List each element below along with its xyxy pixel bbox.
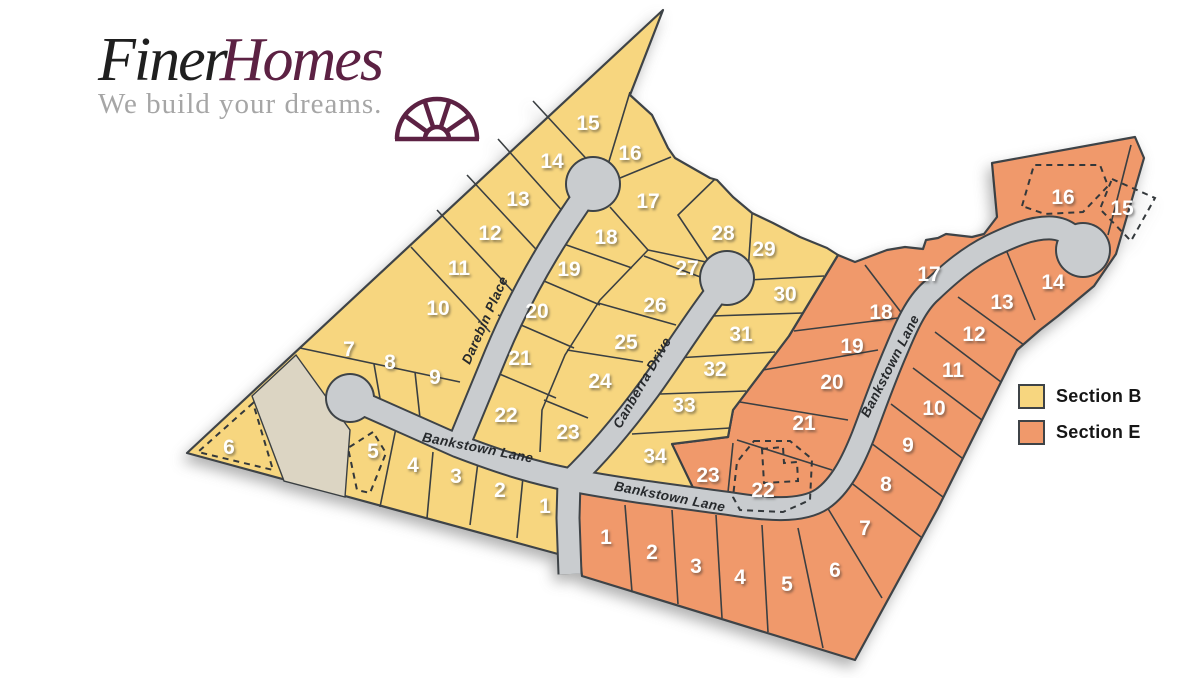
lot-number-B-24: 24 [588, 370, 612, 393]
lot-number-B-16: 16 [618, 142, 641, 165]
lot-number-B-18: 18 [594, 226, 618, 249]
lot-number-E-12: 12 [962, 323, 985, 346]
lot-number-B-11: 11 [448, 257, 471, 280]
culdesac [327, 375, 373, 421]
lot-number-E-17: 17 [917, 263, 940, 286]
legend-row-section-e: Section E [1018, 419, 1142, 445]
lot-number-B-5: 5 [367, 440, 379, 463]
lot-number-E-8: 8 [880, 473, 892, 496]
lot-number-E-2: 2 [646, 541, 658, 564]
section-b-swatch [1018, 384, 1045, 409]
lot-number-E-18: 18 [869, 301, 893, 324]
plat-map: 1234567891011121314151617181920212223242… [0, 0, 1200, 678]
lot-number-E-15: 15 [1110, 197, 1134, 220]
lot-number-B-9: 9 [429, 366, 441, 389]
lot-number-E-6: 6 [829, 559, 841, 582]
lot-number-E-9: 9 [902, 434, 914, 457]
page: { "logo": { "title_part1": "Finer", "tit… [0, 0, 1200, 678]
lot-number-E-3: 3 [690, 555, 702, 578]
lot-number-E-7: 7 [859, 517, 871, 540]
lot-number-B-3: 3 [450, 465, 462, 488]
lot-number-B-30: 30 [773, 283, 796, 306]
lot-number-B-32: 32 [703, 358, 726, 381]
lot-number-E-14: 14 [1041, 271, 1065, 294]
lot-number-E-4: 4 [734, 566, 746, 589]
section-b-label: Section B [1056, 386, 1142, 407]
lot-number-B-13: 13 [506, 188, 529, 211]
lot-number-B-34: 34 [643, 445, 667, 468]
culdesac [1057, 224, 1109, 276]
lot-number-E-5: 5 [781, 573, 793, 596]
lot-number-B-10: 10 [426, 297, 449, 320]
lot-number-B-1: 1 [539, 495, 551, 518]
section-e-swatch [1018, 420, 1045, 445]
section-e-label: Section E [1056, 422, 1141, 443]
lot-number-B-33: 33 [672, 394, 695, 417]
lot-number-B-23: 23 [556, 421, 579, 444]
lot-number-B-22: 22 [494, 404, 517, 427]
lot-number-B-12: 12 [478, 222, 501, 245]
lot-number-E-16: 16 [1051, 186, 1074, 209]
legend-row-section-b: Section B [1018, 383, 1142, 409]
lot-number-B-4: 4 [407, 454, 419, 477]
lot-number-B-8: 8 [384, 351, 396, 374]
lot-number-E-19: 19 [840, 335, 863, 358]
lot-number-E-20: 20 [820, 371, 843, 394]
map-legend: Section B Section E [1018, 383, 1142, 455]
lot-number-B-21: 21 [508, 347, 532, 370]
lot-number-B-31: 31 [729, 323, 753, 346]
lot-number-E-21: 21 [792, 412, 816, 435]
lot-number-E-22: 22 [751, 479, 774, 502]
lot-number-B-25: 25 [614, 331, 638, 354]
lot-number-E-11: 11 [942, 359, 965, 382]
lot-number-B-26: 26 [643, 294, 666, 317]
lot-number-B-17: 17 [636, 190, 659, 213]
lot-number-B-28: 28 [711, 222, 735, 245]
lot-number-B-15: 15 [576, 112, 600, 135]
lot-number-B-6: 6 [223, 436, 235, 459]
lot-number-B-29: 29 [752, 238, 775, 261]
lot-number-E-1: 1 [600, 526, 612, 549]
lot-number-E-10: 10 [922, 397, 945, 420]
lot-number-B-7: 7 [343, 338, 355, 361]
culdesac [701, 252, 753, 304]
culdesac [567, 158, 619, 210]
lot-number-B-27: 27 [675, 257, 698, 280]
lot-number-E-13: 13 [990, 291, 1013, 314]
lot-number-B-19: 19 [557, 258, 580, 281]
lot-number-B-2: 2 [494, 479, 506, 502]
lot-number-B-20: 20 [525, 300, 548, 323]
lot-number-E-23: 23 [696, 464, 719, 487]
lot-number-B-14: 14 [540, 150, 564, 173]
